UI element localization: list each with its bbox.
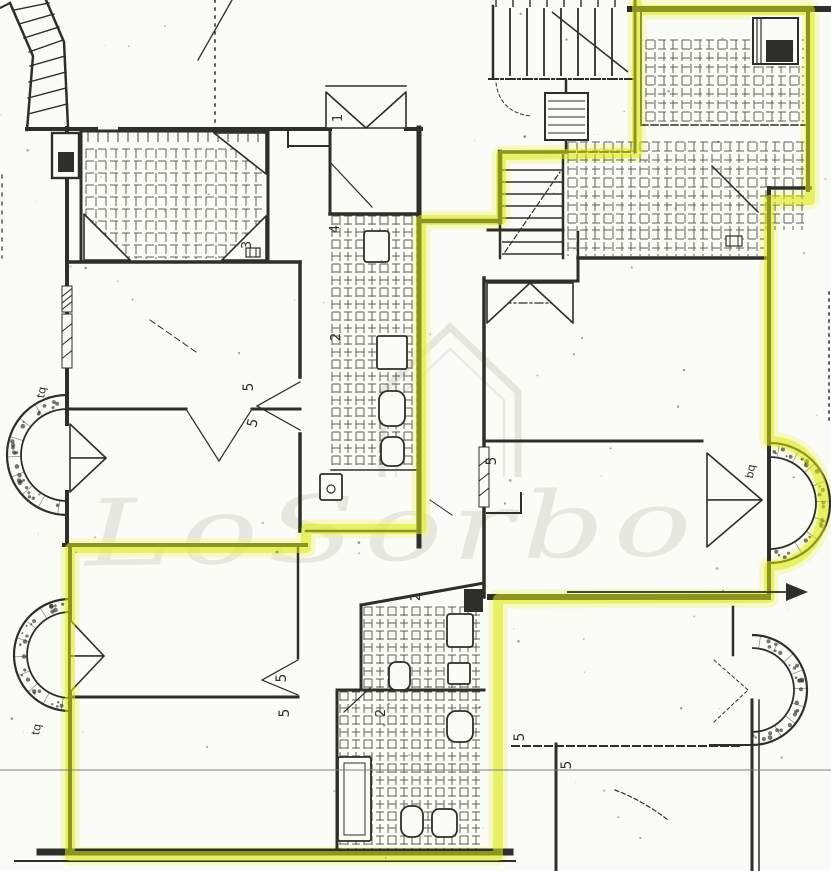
plan-label: 2: [374, 709, 389, 717]
plan-label: 5: [512, 733, 528, 742]
plan-label: bq: [743, 463, 758, 479]
plan-label: 4: [328, 225, 343, 233]
plan-label: 5: [277, 709, 293, 718]
plan-label: 2: [409, 593, 424, 601]
plan-label: 5: [241, 383, 257, 392]
plan-label: 5: [244, 417, 262, 430]
plan-label: 5: [559, 761, 575, 770]
plan-label: tq: [29, 723, 44, 736]
plan-label: tq: [34, 386, 49, 399]
plan-label: 5: [274, 674, 290, 683]
scanned-floor-plan-page: LoSorbo 1423555555522tqtqbq: [0, 0, 831, 871]
plan-label: 5: [484, 457, 500, 466]
plan-label: 2: [329, 333, 344, 341]
tile-grids: [86, 16, 804, 849]
plan-label: 3: [240, 241, 255, 249]
floor-plan-svg: LoSorbo 1423555555522tqtqbq: [0, 0, 831, 871]
plan-label: 1: [331, 114, 346, 122]
